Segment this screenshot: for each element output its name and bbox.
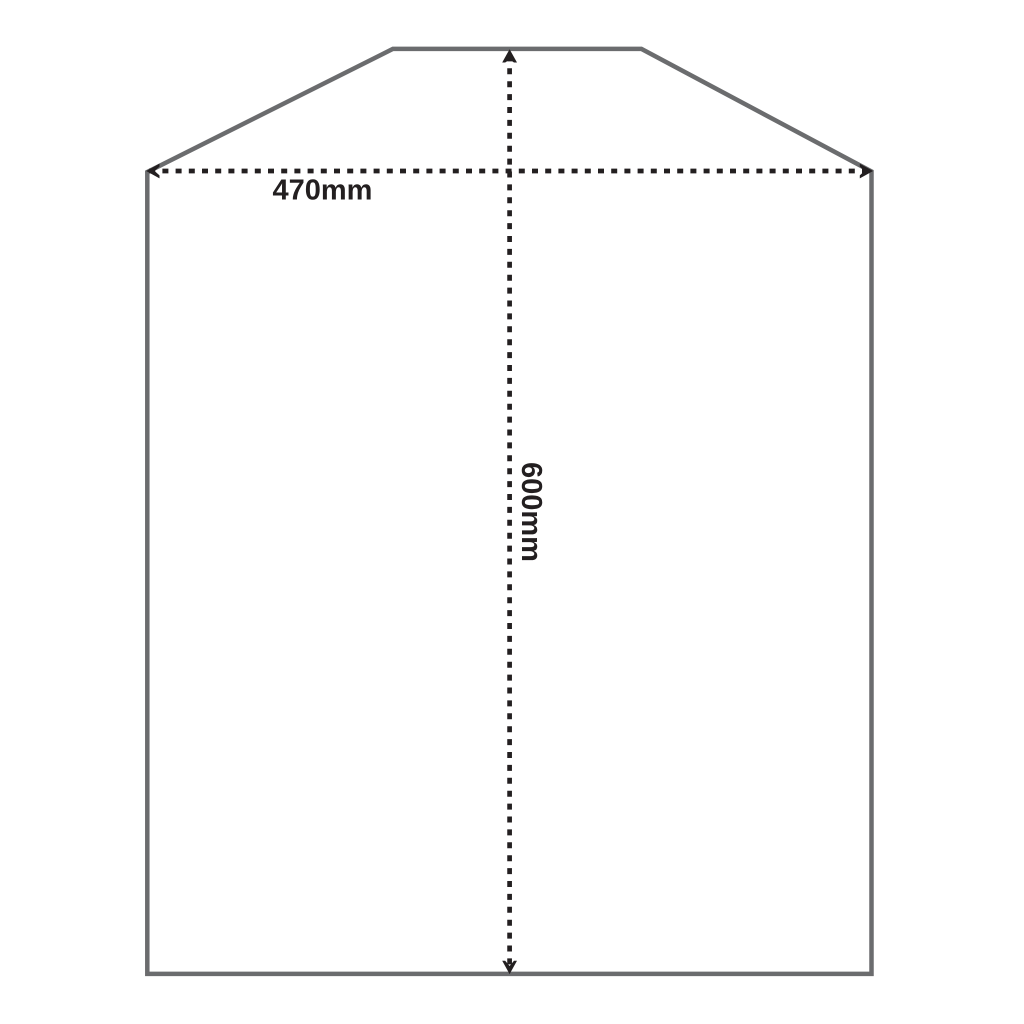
- svg-text:470mm: 470mm: [273, 175, 373, 207]
- svg-text:600mm: 600mm: [515, 462, 547, 562]
